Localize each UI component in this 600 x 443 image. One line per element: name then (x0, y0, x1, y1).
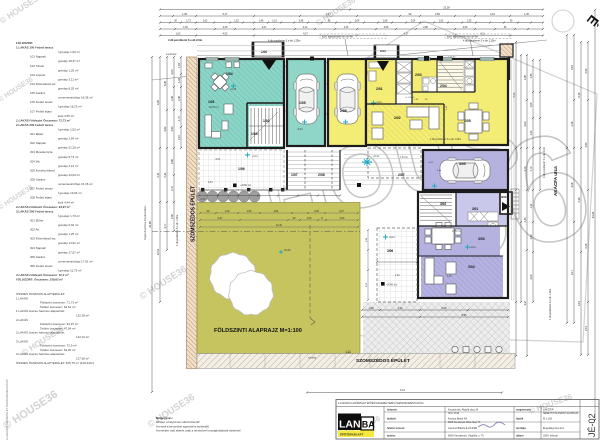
svg-text:Lammel Balázs É 23-0381: Lammel Balázs É 23-0381 (448, 427, 478, 430)
svg-text:2,27: 2,27 (262, 27, 267, 29)
svg-text:104 Föld-étkező-wc: 104 Föld-étkező-wc (30, 82, 56, 86)
svg-text:5,17: 5,17 (326, 13, 331, 16)
svg-text:greslap 2,13 m²: greslap 2,13 m² (58, 164, 78, 168)
svg-text:-0,45: -0,45 (200, 199, 206, 201)
svg-text:3.LAKÁS 300 Fedett terasz: 3.LAKÁS 300 Fedett terasz (16, 208, 54, 213)
svg-text:3,62: 3,62 (170, 126, 174, 132)
svg-text:greslap 21,26 m²: greslap 21,26 m² (58, 146, 80, 150)
svg-text:3.LAKÁS összes hasznos alapter: 3.LAKÁS összes hasznos alapterület: (16, 352, 65, 356)
svg-text:2/04: 2/04 (440, 84, 447, 88)
svg-text:2.LAKÁSOS LAKÓÉPÜLET ÉPÍTÉSI E: 2.LAKÁSOS LAKÓÉPÜLET ÉPÍTÉSI ENGEDÉLYEZÉ… (338, 402, 424, 405)
svg-text:1,08: 1,08 (383, 21, 388, 23)
svg-text:2,56: 2,56 (435, 13, 440, 16)
svg-text:2,66: 2,66 (170, 158, 174, 164)
svg-text:f.greslap 11,73 m²: f.greslap 11,73 m² (58, 269, 81, 273)
svg-text:Meglévő kerítése következtében: Meglévő kerítése következtében (144, 205, 147, 240)
svg-text:közl. égéstermék min vk 4m: közl. égéstermék min vk 4m (447, 36, 478, 39)
svg-text:greslap 1,25 m²: greslap 1,25 m² (58, 232, 78, 236)
svg-text:BA: BA (362, 420, 375, 430)
svg-text:132,36 m²: 132,36 m² (76, 314, 89, 318)
svg-text:5,36: 5,36 (163, 80, 167, 86)
svg-text:5,41: 5,41 (156, 172, 160, 178)
svg-text:6,26: 6,26 (577, 92, 581, 98)
svg-text:cementestrichlap 17,91 m²: cementestrichlap 17,91 m² (58, 259, 93, 263)
svg-text:hrsz 1743: hrsz 1743 (448, 412, 460, 415)
svg-text:greslap 18,37 m²: greslap 18,37 m² (58, 59, 80, 63)
svg-text:4,06: 4,06 (570, 182, 574, 188)
svg-text:6,08: 6,08 (441, 306, 447, 310)
svg-text:22,38: 22,38 (443, 7, 450, 10)
svg-text:1,08: 1,08 (368, 306, 374, 310)
svg-text:1/02: 1/02 (263, 119, 270, 123)
svg-text:Engedélyezési terv: Engedélyezési terv (543, 427, 565, 430)
svg-text:4,52: 4,52 (223, 33, 228, 36)
svg-text:1,20: 1,20 (225, 210, 230, 213)
svg-text:1,70: 1,70 (177, 115, 181, 121)
svg-text:1/06: 1/06 (238, 167, 245, 171)
svg-text:1.LAKÁS 100 Fedett terasz: 1.LAKÁS 100 Fedett terasz (16, 45, 54, 50)
svg-text:22,98: 22,98 (148, 221, 152, 228)
svg-text:2,04: 2,04 (355, 21, 360, 23)
svg-text:+20/90 (re): +20/90 (re) (240, 184, 252, 187)
svg-text:304 Nappali: 304 Nappali (30, 246, 46, 250)
svg-text:44,43: 44,43 (591, 211, 595, 218)
svg-text:4,13: 4,13 (577, 300, 581, 306)
svg-text:1/05: 1/05 (299, 101, 306, 105)
svg-text:LAKÓTIP: LAKÓTIP (543, 408, 554, 411)
svg-text:SZOMSZÉDOS ÉPÜLET: SZOMSZÉDOS ÉPÜLET (189, 186, 197, 242)
svg-text:greslap 24,94 m²: greslap 24,94 m² (58, 173, 80, 177)
svg-text:105 Garázs: 105 Garázs (30, 91, 46, 95)
svg-text:tervfajta: tervfajta (516, 427, 526, 430)
svg-text:201 Előtér: 201 Előtér (30, 132, 43, 136)
svg-text:6,04: 6,04 (400, 389, 405, 392)
svg-text:1,70: 1,70 (523, 166, 527, 172)
svg-text:2004. február: 2004. február (543, 435, 558, 438)
svg-text:M 1:100: M 1:100 (543, 418, 553, 421)
svg-text:1/01: 1/01 (208, 100, 215, 104)
svg-text:2,08: 2,08 (384, 27, 389, 29)
svg-text:Kecskemét, Akácfa utca 14: Kecskemét, Akácfa utca 14 (448, 408, 479, 411)
svg-text:206 Garázs: 206 Garázs (30, 178, 46, 182)
svg-text:telekhatár: telekhatár (166, 53, 177, 56)
svg-text:1,10: 1,10 (272, 21, 277, 23)
svg-text:1,45: 1,45 (524, 13, 529, 16)
svg-text:1/04: 1/04 (226, 72, 233, 76)
svg-text:kulé 4,55 m²: kulé 4,55 m² (58, 114, 74, 118)
svg-text:közl. égéstermék min vk 4m: közl. égéstermék min vk 4m (322, 36, 353, 39)
svg-text:cementestrichlap 16,36 m²: cementestrichlap 16,36 m² (58, 96, 93, 100)
svg-text:2.LAKÁS: 2.LAKÁS (16, 318, 28, 322)
svg-text:2,06: 2,06 (463, 27, 468, 29)
svg-text:A terveken való eltérés csak a: A terveken való eltérés csak a tervezőve… (156, 429, 241, 433)
svg-text:5,06: 5,06 (447, 276, 452, 278)
svg-text:4 db porotherm S e áh 1,25m: 4 db porotherm S e áh 1,25m (430, 138, 461, 141)
svg-text:2,13: 2,13 (584, 325, 588, 331)
svg-text:2,00: 2,00 (529, 274, 533, 280)
svg-text:2,90: 2,90 (584, 68, 588, 74)
svg-text:+20/90 (re): +20/90 (re) (386, 284, 398, 287)
svg-text:4,27: 4,27 (303, 33, 308, 36)
svg-text:205 Konyha étkező: 205 Konyha étkező (30, 168, 56, 172)
svg-text:12,31: 12,31 (276, 224, 283, 227)
svg-text:f.greslap 13,94 m²: f.greslap 13,94 m² (58, 191, 82, 195)
svg-text:FÖLDSZINT: Összesen:: FÖLDSZINT: Összesen: 239,62 m² (16, 277, 64, 282)
svg-text:+0,11: +0,11 (389, 237, 395, 239)
svg-text:2/01: 2/01 (376, 87, 383, 91)
svg-text:6,47: 6,47 (218, 217, 223, 220)
svg-text:4 db porotherm S e áh 2,0m: 4 db porotherm S e áh 2,0m (168, 38, 203, 42)
svg-text:1,64: 1,64 (177, 62, 181, 68)
svg-text:2/06: 2/06 (340, 109, 347, 113)
svg-text:2,25: 2,25 (223, 27, 228, 29)
svg-text:10,01: 10,01 (156, 248, 160, 255)
svg-text:2,10: 2,10 (397, 306, 403, 310)
svg-text:2/02: 2/02 (394, 116, 401, 120)
svg-text:2,28: 2,28 (570, 121, 574, 127)
svg-text:1,73: 1,73 (186, 21, 191, 23)
svg-text:1.LAKÁS Földszint Összesen:: 1.LAKÁS Földszint Összesen: 71,73 m² (16, 117, 71, 122)
svg-text:5,61: 5,61 (570, 64, 574, 70)
svg-text:2/08: 2/08 (318, 173, 325, 177)
svg-text:207 Fedett terasz: 207 Fedett terasz (30, 187, 53, 191)
svg-text:greslap 8,25 m²: greslap 8,25 m² (58, 87, 78, 91)
svg-text:megnevezés: megnevezés (516, 408, 531, 411)
svg-text:3/05: 3/05 (459, 162, 466, 166)
svg-text:204 Wc: 204 Wc (30, 159, 40, 163)
svg-text:helyszín: helyszín (387, 408, 397, 411)
svg-text:3,27: 3,27 (339, 210, 344, 213)
svg-text:2.LAKÁS összes hasznos alapter: 2.LAKÁS összes hasznos alapterület: (16, 331, 65, 335)
svg-text:18,37 m²: 18,37 m² (209, 106, 219, 109)
svg-text:1,50: 1,50 (247, 210, 252, 213)
svg-text:2/05: 2/05 (464, 119, 471, 123)
svg-text:3.LAKÁS: 3.LAKÁS (16, 339, 28, 343)
svg-text:4 db porotherm S e áh 1,25m: 4 db porotherm S e áh 1,25m (176, 215, 179, 246)
svg-text:AKÁCFA utca: AKÁCFA utca (552, 166, 558, 196)
svg-text:142,01 m²: 142,01 m² (76, 335, 89, 339)
svg-text:1,05: 1,05 (529, 102, 533, 108)
svg-text:dátum: dátum (516, 435, 524, 438)
svg-text:2,10: 2,10 (490, 13, 495, 16)
svg-text:3/02: 3/02 (440, 202, 446, 206)
svg-text:FÖLDSZINTI ALAPRAJZ M=1:100: FÖLDSZINTI ALAPRAJZ M=1:100 (214, 327, 302, 334)
svg-text:cementestrichlap 16,36 m²: cementestrichlap 16,36 m² (58, 182, 93, 186)
svg-text:sávalap: sávalap (308, 357, 317, 360)
svg-text:greslap 5,74 m²: greslap 5,74 m² (58, 155, 78, 159)
svg-text:1,20: 1,20 (529, 234, 533, 240)
svg-text:5,26: 5,26 (577, 197, 581, 203)
svg-text:2,08: 2,08 (423, 27, 428, 29)
svg-text:Kovács Birtok Kft: Kovács Birtok Kft (448, 418, 467, 421)
svg-text:303 Föld-étkező-wc: 303 Föld-étkező-wc (30, 237, 56, 241)
svg-text:1,70: 1,70 (529, 166, 533, 172)
svg-text:greslap 1,25 m²: greslap 1,25 m² (58, 68, 78, 72)
svg-text:greslap 17,57 m²: greslap 17,57 m² (58, 250, 80, 254)
svg-text:1/00: 1/00 (261, 50, 267, 54)
svg-text:4,17: 4,17 (404, 33, 409, 36)
svg-text:2,00: 2,00 (314, 210, 319, 213)
svg-text:1,39: 1,39 (182, 13, 187, 16)
svg-text:LAN: LAN (339, 419, 361, 431)
svg-text:-1,35: -1,35 (345, 351, 351, 354)
svg-text:1,52: 1,52 (183, 27, 188, 29)
svg-text:301 Előtér: 301 Előtér (30, 218, 43, 222)
svg-text:2,12: 2,12 (303, 27, 308, 29)
svg-text:4,37: 4,37 (523, 300, 527, 306)
svg-text:2/07: 2/07 (398, 173, 405, 177)
svg-text:2,90: 2,90 (170, 213, 174, 219)
svg-text:-0,03: -0,03 (297, 128, 303, 131)
svg-text:ÖSSZES HASZNOS ALAPTERÜLET: 40: ÖSSZES HASZNOS ALAPTERÜLET: 405,75 m² (4… (16, 361, 94, 365)
svg-text:2,36: 2,36 (170, 95, 174, 101)
svg-text:2,10: 2,10 (177, 134, 181, 140)
svg-text:107 Fedett lejáró: 107 Fedett lejáró (30, 109, 52, 113)
svg-text:építész: építész (387, 435, 396, 438)
svg-text:FÖLDSZINT:: FÖLDSZINT: (16, 40, 33, 45)
svg-text:1,00: 1,00 (307, 217, 312, 220)
svg-text:±0,00: ±0,00 (284, 248, 291, 252)
svg-text:4,77: 4,77 (163, 223, 167, 229)
svg-text:építtető: építtető (387, 418, 397, 421)
svg-text:4 db porotherm S e áh 1,25m: 4 db porotherm S e áh 1,25m (549, 289, 552, 320)
svg-text:2,70: 2,70 (170, 185, 174, 191)
svg-text:3,95: 3,95 (584, 142, 588, 148)
svg-text:+0,11: +0,11 (470, 247, 476, 249)
svg-text:-0,01: -0,01 (215, 159, 221, 161)
svg-text:5,41: 5,41 (163, 172, 167, 178)
svg-text:+0,11: +0,11 (252, 156, 258, 158)
svg-text:2,40: 2,40 (523, 217, 527, 223)
svg-text:3/03: 3/03 (478, 237, 485, 241)
svg-text:ÉPÍTŐIPARI KFT: ÉPÍTŐIPARI KFT (340, 432, 364, 437)
svg-text:4 db porotherm S e áh 1,25m: 4 db porotherm S e áh 1,25m (463, 40, 496, 43)
svg-text:306 Fedett terasz: 306 Fedett terasz (30, 264, 53, 268)
svg-text:+1,24 m²: +1,24 m² (405, 96, 414, 99)
svg-text:305 Garázs: 305 Garázs (30, 255, 46, 259)
svg-text:17,57 m²: 17,57 m² (452, 230, 461, 233)
svg-text:102 Tároló: 102 Tároló (30, 64, 44, 68)
svg-text:1,32: 1,32 (529, 203, 533, 209)
svg-text:1,45: 1,45 (529, 73, 533, 79)
svg-text:3/01: 3/01 (472, 207, 478, 211)
svg-text:1,46: 1,46 (259, 21, 264, 23)
svg-text:302 Ak.: 302 Ak. (30, 228, 40, 232)
svg-text:208 Fedett lejáró: 208 Fedett lejáró (30, 196, 52, 200)
svg-text:4,84: 4,84 (274, 210, 279, 213)
svg-text:JÉ-02: JÉ-02 (587, 413, 597, 437)
svg-text:1,34: 1,34 (177, 77, 181, 83)
svg-text:5,25: 5,25 (584, 243, 588, 249)
svg-text:4 db porotherm S e áh 2,0m: 4 db porotherm S e áh 2,0m (543, 147, 546, 178)
svg-text:203 Mosókonyha: 203 Mosókonyha (30, 150, 53, 154)
svg-text:felelős tervező: felelős tervező (387, 427, 405, 430)
svg-text:101 Nappali: 101 Nappali (30, 55, 46, 59)
svg-text:NÉMETH FÖLDSZINT ALAPRAJZ: NÉMETH FÖLDSZINT ALAPRAJZ (543, 412, 579, 415)
svg-text:202 Nappali: 202 Nappali (30, 141, 46, 145)
svg-text:1/03: 1/03 (251, 132, 258, 136)
svg-text:3/06: 3/06 (387, 249, 393, 253)
svg-text:f.greslap 1,52 m²: f.greslap 1,52 m² (58, 50, 80, 54)
svg-text:1,52: 1,52 (234, 21, 239, 23)
svg-text:kulé 4,44 m²: kulé 4,44 m² (58, 200, 74, 204)
svg-text:1.LAKÁS: 1.LAKÁS (16, 296, 28, 300)
svg-text:2.LAKÁS 200 Fedett terasz: 2.LAKÁS 200 Fedett terasz (16, 122, 54, 127)
svg-text:2,36: 2,36 (177, 95, 181, 101)
svg-text:1,20: 1,20 (529, 130, 533, 136)
svg-text:f.greslap 1,73 m²: f.greslap 1,73 m² (58, 214, 80, 218)
svg-text:9,06: 9,06 (156, 99, 160, 105)
svg-text:greslap 14,91 m²: greslap 14,91 m² (58, 241, 80, 245)
svg-text:1,62: 1,62 (176, 33, 181, 36)
svg-text:f.greslap 16,23 m²: f.greslap 16,23 m² (58, 105, 82, 109)
svg-text:3,00: 3,00 (170, 69, 174, 75)
svg-text:106 Fedett terasz: 106 Fedett terasz (30, 100, 53, 104)
svg-text:6000 Kecskemét, Béke fasor 71: 6000 Kecskemét, Béke fasor 71 (448, 421, 481, 424)
svg-text:5,17: 5,17 (223, 13, 228, 16)
svg-text:7,34 m²: 7,34 m² (400, 156, 408, 159)
svg-text:+0,11: +0,11 (373, 155, 380, 158)
svg-text:2,46: 2,46 (299, 21, 304, 23)
svg-text:2,40: 2,40 (395, 275, 400, 277)
svg-text:+0,11: +0,11 (428, 162, 434, 164)
svg-text:f.greslap 1,52 m²: f.greslap 1,52 m² (58, 127, 80, 131)
svg-text:2,15: 2,15 (344, 27, 349, 29)
svg-text:greslap 3,11 m²: greslap 3,11 m² (58, 77, 78, 81)
svg-text:2.LAKÁS Földszint Összesen:: 2.LAKÁS Földszint Összesen: 94,97 m² (15, 204, 71, 209)
svg-text:lépték: lépték (516, 418, 524, 421)
svg-text:103 Lépcső: 103 Lépcső (30, 73, 46, 77)
svg-text:2,03: 2,03 (340, 217, 345, 220)
svg-text:3,62: 3,62 (163, 126, 167, 132)
svg-text:1,62: 1,62 (203, 21, 208, 23)
svg-text:6,00: 6,00 (208, 182, 213, 184)
svg-text:1.LAKÁS összes hasznos alapter: 1.LAKÁS összes hasznos alapterület: (16, 309, 65, 313)
svg-text:greslap 2,64 m²: greslap 2,64 m² (58, 137, 78, 141)
svg-text:greslap 6,94 m²: greslap 6,94 m² (58, 223, 78, 227)
svg-text:8,95: 8,95 (461, 313, 467, 317)
svg-text:3,00: 3,00 (523, 121, 527, 127)
svg-text:3.LAKÁS Földszint Összesen:: 3.LAKÁS Földszint Összesen: 72,3 m² (16, 272, 70, 277)
svg-text:3/00: 3/00 (501, 195, 507, 199)
svg-text:2/03: 2/03 (415, 73, 422, 77)
svg-text:4,17: 4,17 (570, 269, 574, 275)
svg-text:3/04: 3/04 (468, 265, 475, 269)
svg-text:1,02: 1,02 (439, 21, 444, 23)
svg-text:1/07: 1/07 (291, 173, 298, 177)
svg-text:2,04: 2,04 (411, 21, 416, 23)
svg-text:6000 Kecskemét, Vágóhíd u. 79: 6000 Kecskemét, Vágóhíd u. 79 (448, 435, 484, 438)
svg-text:1,35: 1,35 (467, 21, 472, 23)
svg-text:1,85: 1,85 (523, 74, 527, 80)
